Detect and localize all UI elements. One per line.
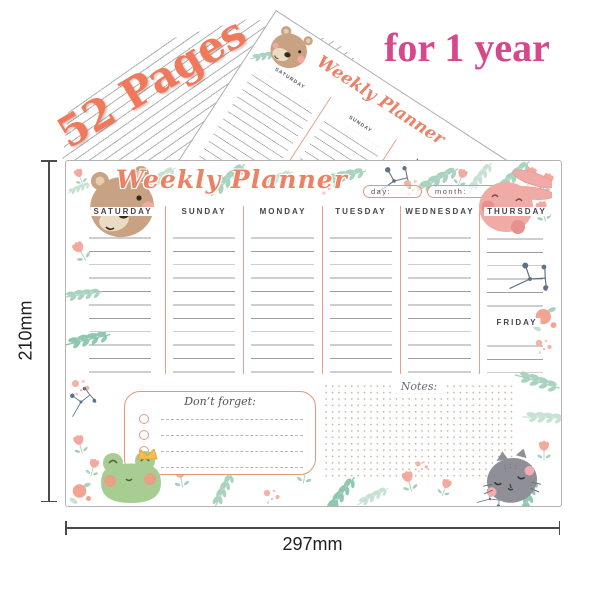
column-divider	[243, 206, 244, 374]
wednesday-ruled-lines	[408, 225, 471, 375]
checklist-line	[161, 419, 303, 420]
height-dimension-line	[48, 160, 50, 502]
checklist-line	[161, 435, 303, 436]
column-header-tuesday: TUESDAY	[332, 207, 390, 216]
berry-branch-decoration	[65, 384, 99, 421]
width-dimension-label: 297mm	[65, 534, 560, 555]
column-header-saturday: SATURDAY	[90, 207, 155, 216]
checkbox-circle	[139, 414, 149, 424]
weekly-planner-title: Weekly Planner	[116, 165, 348, 194]
checklist-row	[139, 430, 303, 440]
column-header-monday: MONDAY	[257, 207, 310, 216]
bunny-illustration	[478, 167, 552, 235]
main-planner-page: Weekly Planner day: month: SATURDAY SUND…	[65, 160, 562, 507]
day-field: day:	[363, 185, 422, 198]
sunday-ruled-lines	[173, 225, 235, 375]
column-header-thursday: THURSDAY	[484, 207, 550, 216]
product-image: { "promo": { "pages_label": "52 Pages", …	[0, 0, 600, 600]
cat-illustration	[483, 449, 541, 506]
dot-cluster-decoration	[414, 459, 430, 475]
month-field-label: month:	[435, 187, 467, 196]
checklist-line	[161, 451, 303, 452]
column-header-sunday: SUNDAY	[178, 207, 229, 216]
dont-forget-title: Don’t forget:	[125, 395, 315, 408]
monday-ruled-lines	[251, 225, 314, 375]
duration-label: for 1 year	[352, 24, 582, 71]
dot-cluster-decoration	[262, 487, 282, 507]
width-dimension-line	[65, 527, 560, 529]
checklist-row	[139, 414, 303, 424]
column-divider	[400, 206, 401, 374]
tuesday-ruled-lines	[330, 225, 392, 375]
friday-label: FRIDAY	[493, 318, 540, 327]
notes-title: Notes:	[395, 380, 444, 393]
leaf-sprig-decoration	[355, 478, 392, 507]
checklist-line	[161, 467, 303, 468]
checkbox-circle	[139, 430, 149, 440]
column-divider	[322, 206, 323, 374]
height-dimension-label: 210mm	[16, 281, 37, 381]
frog-illustration	[98, 449, 164, 507]
day-field-label: day:	[371, 187, 391, 196]
flower-decoration	[66, 479, 96, 507]
column-header-wednesday: WEDNESDAY	[402, 207, 477, 216]
